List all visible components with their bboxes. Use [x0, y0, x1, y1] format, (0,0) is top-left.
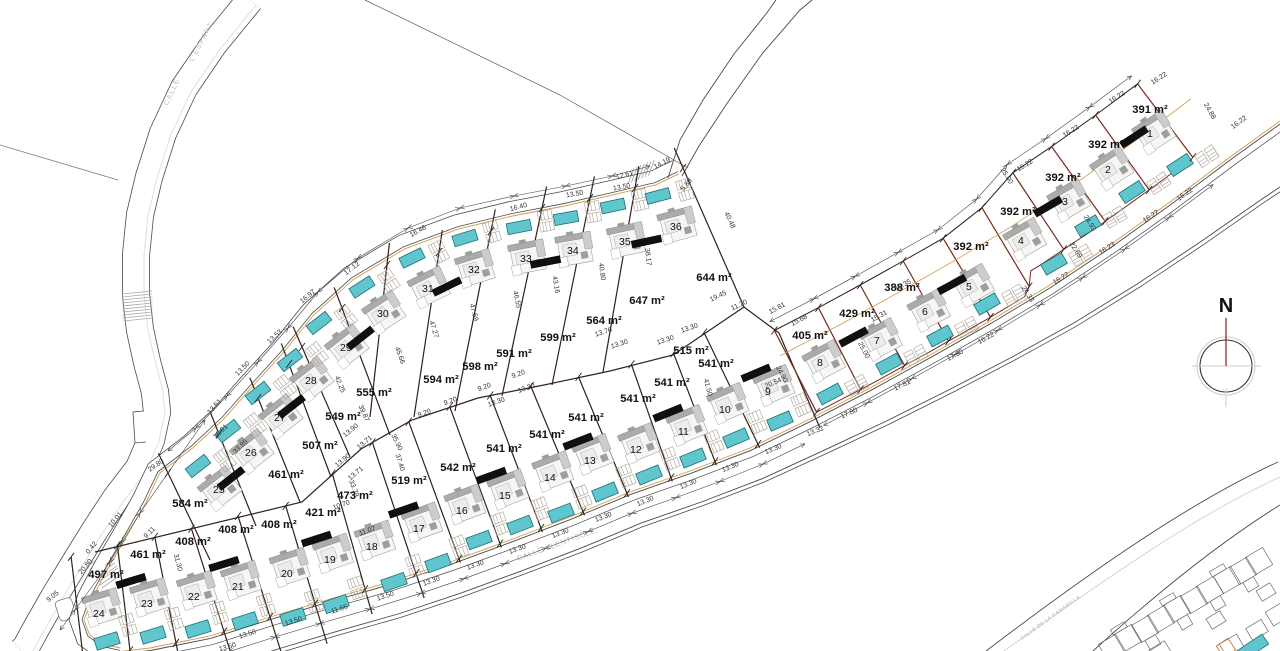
- svg-text:519 m²: 519 m²: [391, 475, 427, 487]
- svg-text:13: 13: [584, 455, 596, 467]
- svg-text:564 m²: 564 m²: [586, 315, 622, 327]
- svg-text:30: 30: [377, 308, 389, 320]
- svg-text:392 m²: 392 m²: [953, 241, 989, 253]
- svg-text:497 m²: 497 m²: [88, 569, 124, 581]
- svg-text:34: 34: [567, 245, 579, 257]
- svg-text:14: 14: [544, 472, 556, 484]
- svg-text:N: N: [1219, 295, 1233, 317]
- svg-text:36: 36: [670, 221, 682, 233]
- svg-text:35: 35: [619, 236, 631, 248]
- svg-text:22: 22: [188, 591, 200, 603]
- svg-text:392 m²: 392 m²: [1088, 139, 1124, 151]
- svg-text:24: 24: [93, 608, 105, 620]
- svg-text:541 m²: 541 m²: [486, 443, 522, 455]
- svg-text:31: 31: [422, 283, 434, 295]
- svg-text:26: 26: [245, 447, 257, 459]
- svg-text:8: 8: [817, 357, 823, 369]
- svg-text:12: 12: [630, 444, 642, 456]
- svg-text:541 m²: 541 m²: [698, 358, 734, 370]
- svg-text:392 m²: 392 m²: [1045, 172, 1081, 184]
- svg-text:647 m²: 647 m²: [629, 295, 665, 307]
- svg-text:19: 19: [324, 554, 336, 566]
- svg-text:594 m²: 594 m²: [423, 374, 459, 386]
- svg-text:599 m²: 599 m²: [540, 332, 576, 344]
- svg-text:549 m²: 549 m²: [325, 411, 361, 423]
- svg-text:392 m²: 392 m²: [1000, 206, 1036, 218]
- svg-text:555 m²: 555 m²: [356, 387, 392, 399]
- svg-text:2: 2: [1105, 164, 1111, 176]
- svg-text:591 m²: 591 m²: [496, 348, 532, 360]
- svg-text:23: 23: [141, 598, 153, 610]
- svg-text:405 m²: 405 m²: [792, 330, 828, 342]
- svg-text:33: 33: [520, 253, 532, 265]
- svg-text:20: 20: [281, 568, 293, 580]
- svg-text:461 m²: 461 m²: [268, 469, 304, 481]
- svg-text:10: 10: [719, 404, 731, 416]
- svg-text:18: 18: [366, 541, 378, 553]
- svg-text:584 m²: 584 m²: [172, 498, 208, 510]
- svg-text:408 m²: 408 m²: [261, 519, 297, 531]
- svg-text:32: 32: [468, 264, 480, 276]
- svg-text:598 m²: 598 m²: [462, 361, 498, 373]
- svg-text:28: 28: [305, 375, 317, 387]
- svg-text:7: 7: [874, 335, 880, 347]
- svg-text:15: 15: [499, 490, 511, 502]
- svg-text:644 m²: 644 m²: [696, 272, 732, 284]
- svg-text:6: 6: [922, 306, 928, 318]
- svg-text:515 m²: 515 m²: [673, 345, 709, 357]
- svg-text:11: 11: [678, 426, 689, 438]
- svg-text:408 m²: 408 m²: [175, 536, 211, 548]
- svg-text:541 m²: 541 m²: [568, 412, 604, 424]
- svg-text:391 m²: 391 m²: [1132, 104, 1168, 116]
- svg-text:16: 16: [456, 505, 468, 517]
- svg-text:17: 17: [413, 523, 425, 535]
- svg-text:408 m²: 408 m²: [218, 524, 254, 536]
- svg-text:507 m²: 507 m²: [302, 440, 338, 452]
- svg-text:461 m²: 461 m²: [130, 549, 166, 561]
- svg-text:541 m²: 541 m²: [620, 393, 656, 405]
- svg-text:4: 4: [1018, 235, 1024, 247]
- svg-text:542 m²: 542 m²: [440, 462, 476, 474]
- svg-text:1: 1: [1147, 128, 1153, 140]
- svg-text:5: 5: [966, 281, 972, 293]
- svg-text:21: 21: [232, 581, 244, 593]
- svg-text:541 m²: 541 m²: [654, 377, 690, 389]
- svg-text:541 m²: 541 m²: [529, 429, 565, 441]
